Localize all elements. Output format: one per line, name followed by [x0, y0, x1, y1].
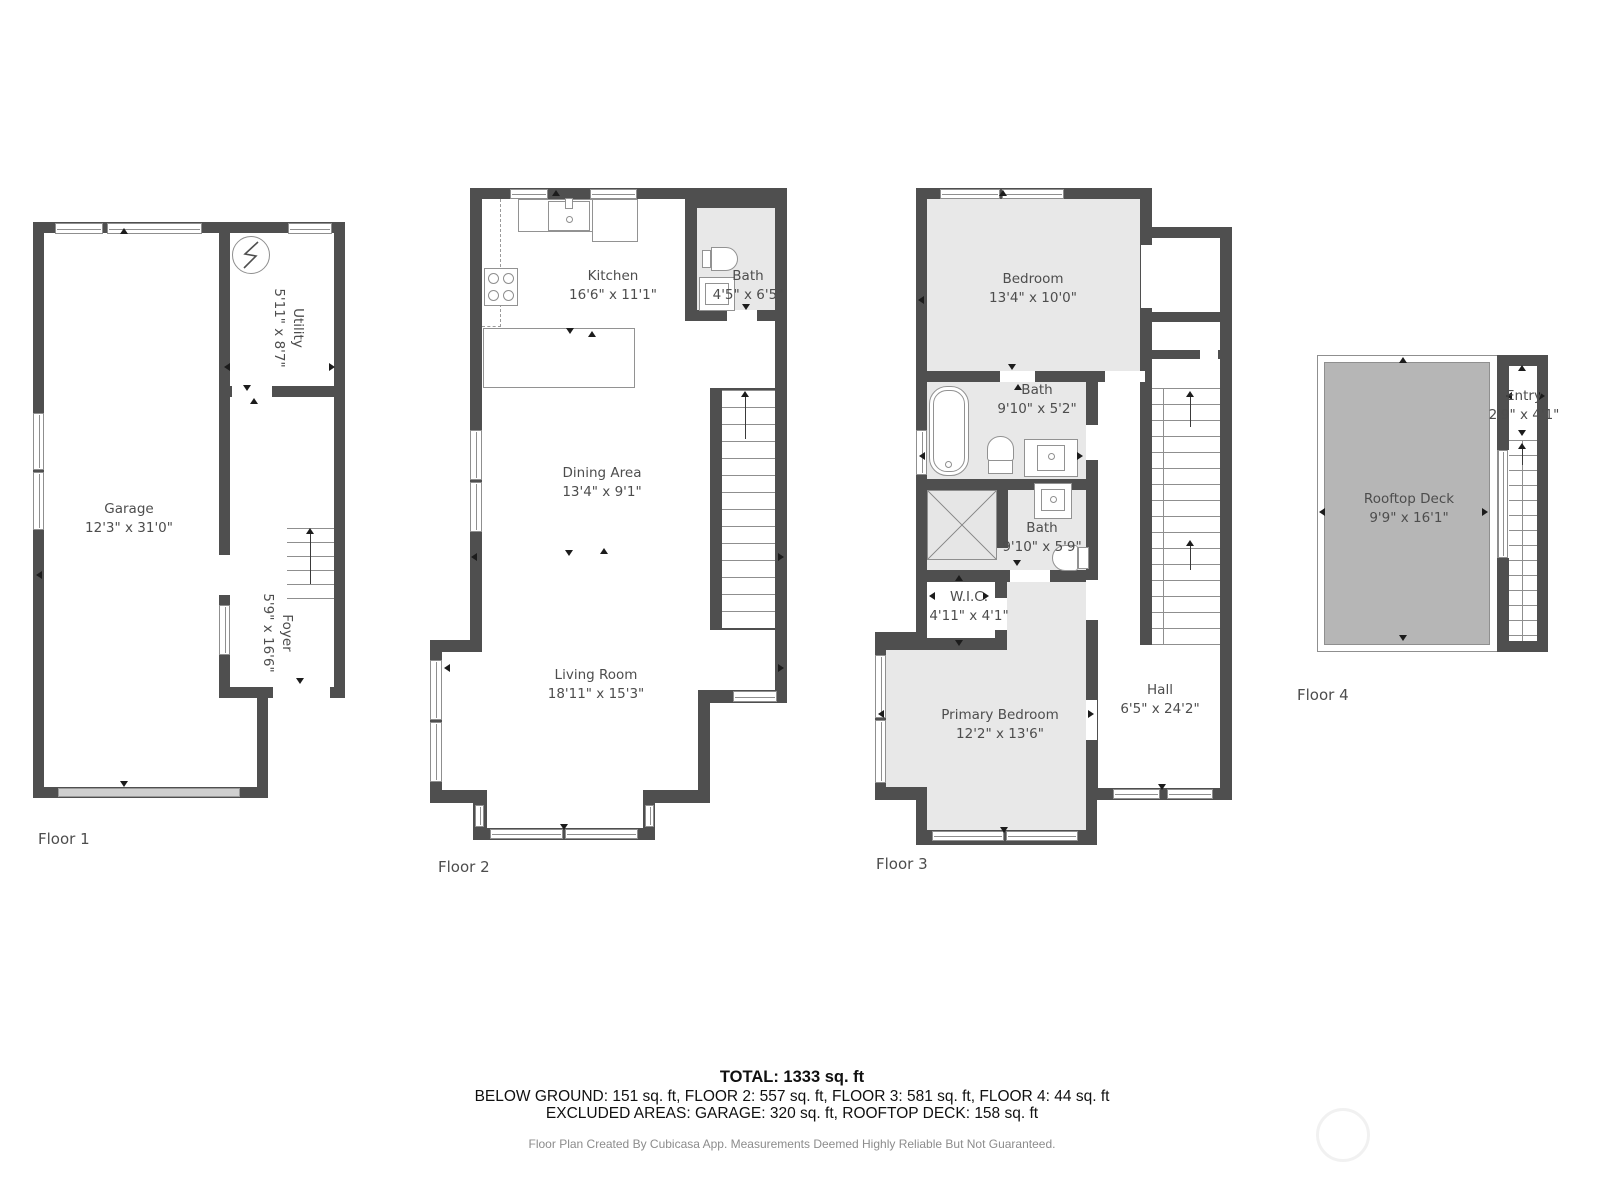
room-label-hall: Hall 6'5" x 24'2"	[1120, 681, 1199, 719]
door-swing-arrow	[918, 296, 924, 304]
floor-caption-2: Floor 2	[438, 858, 490, 876]
stairs-stringer	[1163, 388, 1164, 645]
room-dining	[482, 388, 710, 652]
garage-door	[58, 788, 240, 797]
room-hall	[1152, 359, 1220, 388]
outside	[655, 803, 710, 840]
room-dims: 4'5" x 6'5"	[713, 286, 784, 305]
room-dims: 9'10" x 5'2"	[997, 400, 1076, 419]
stove-burner	[488, 273, 499, 284]
room-dims: 16'6" x 11'1"	[569, 286, 657, 305]
room-name: Rooftop Deck	[1364, 490, 1454, 509]
door-swing-arrow	[120, 781, 128, 787]
refrigerator-outline	[482, 199, 501, 327]
room-dims: 2'9" x 4'1"	[1489, 406, 1560, 425]
toilet-tank	[988, 460, 1013, 474]
stairs	[1509, 440, 1537, 641]
room-name: Utility	[288, 288, 307, 367]
window	[470, 430, 482, 480]
stairs	[722, 390, 775, 628]
stairs-up-arrow	[1518, 443, 1526, 449]
room-hall	[1098, 382, 1140, 788]
stairs-direction-line	[310, 534, 311, 584]
room-label-bath: Bath 4'5" x 6'5"	[713, 267, 784, 305]
room-label-primary: Primary Bedroom 12'2" x 13'6"	[941, 706, 1059, 744]
door-swing-arrow	[742, 304, 750, 310]
stairs-direction-line	[1522, 449, 1523, 465]
door-swing-arrow	[243, 385, 251, 391]
sink-drain	[566, 216, 573, 223]
floor-caption-4: Floor 4	[1297, 686, 1349, 704]
door-swing-arrow	[471, 553, 477, 561]
room-name: Foyer	[277, 593, 296, 672]
door-opening	[1105, 371, 1145, 382]
door-swing-arrow	[778, 553, 784, 561]
room-name: Primary Bedroom	[941, 706, 1059, 725]
door-swing-arrow	[224, 363, 230, 371]
floorplan-canvas: Garage 12'3" x 31'0" Utility 5'11" x 8'7…	[0, 0, 1600, 1200]
room-name: Bath	[997, 381, 1076, 400]
room-label-entry: Entry 2'9" x 4'1"	[1489, 387, 1560, 425]
door-swing-arrow	[1399, 357, 1407, 363]
sink-drain	[1050, 496, 1057, 503]
window	[1006, 831, 1078, 841]
faucet	[565, 198, 573, 209]
window	[33, 413, 44, 470]
room-name: Living Room	[548, 666, 645, 685]
door-swing-arrow	[120, 228, 128, 234]
stairs-direction-line	[1190, 397, 1191, 427]
room-label-bedroom: Bedroom 13'4" x 10'0"	[989, 270, 1077, 308]
room-dims: 9'9" x 16'1"	[1364, 509, 1454, 528]
shower-fixture	[927, 490, 997, 560]
stairs-center-line	[1522, 440, 1523, 641]
window	[645, 805, 654, 827]
door-opening	[1086, 580, 1098, 620]
door-opening	[1086, 700, 1097, 740]
door-swing-arrow	[1319, 508, 1325, 516]
room-primary-bedroom	[1007, 582, 1086, 650]
room-closet	[1152, 322, 1220, 350]
room-label-bath-upper: Bath 9'10" x 5'2"	[997, 381, 1076, 419]
room-name: Garage	[85, 500, 173, 519]
door-swing-arrow	[1482, 508, 1488, 516]
room-dims: 12'3" x 31'0"	[85, 519, 173, 538]
window	[430, 722, 442, 782]
room-label-living: Living Room 18'11" x 15'3"	[548, 666, 645, 704]
window	[932, 831, 1004, 841]
door-swing-arrow	[565, 550, 573, 556]
door-swing-arrow	[878, 710, 884, 718]
room-dims: 18'11" x 15'3"	[548, 685, 645, 704]
room-label-dining: Dining Area 13'4" x 9'1"	[562, 464, 641, 502]
room-name: Dining Area	[562, 464, 641, 483]
window	[490, 829, 563, 839]
room-dims: 13'4" x 10'0"	[989, 289, 1077, 308]
window	[875, 655, 886, 718]
door-swing-arrow	[1013, 560, 1021, 566]
window	[1167, 789, 1213, 799]
room-dims: 6'5" x 24'2"	[1120, 700, 1199, 719]
window	[470, 482, 482, 532]
door-opening	[273, 687, 330, 698]
door-swing-arrow	[600, 548, 608, 554]
door-opening	[1200, 350, 1218, 359]
wall	[1497, 641, 1548, 652]
door-swing-arrow	[1000, 827, 1008, 833]
door-opening	[1141, 245, 1152, 308]
door-swing-arrow	[955, 575, 963, 581]
window	[219, 605, 230, 655]
room-living	[487, 787, 643, 828]
room-label-garage: Garage 12'3" x 31'0"	[85, 500, 173, 538]
window	[1498, 450, 1508, 558]
door-swing-arrow	[1158, 784, 1166, 790]
toilet-tank	[702, 250, 711, 268]
door-swing-arrow	[1088, 710, 1094, 718]
door-swing-arrow	[1518, 430, 1526, 436]
room-garage	[219, 698, 257, 787]
window	[590, 189, 637, 199]
door-opening	[727, 310, 757, 321]
stove-burner	[503, 290, 514, 301]
door-opening	[1086, 425, 1098, 460]
door-swing-arrow	[552, 190, 560, 196]
kitchen-counter	[592, 199, 638, 242]
window	[475, 805, 484, 827]
room-name: Bath	[713, 267, 784, 286]
window	[288, 223, 332, 234]
room-dims: 5'9" x 16'6"	[258, 593, 277, 672]
stairs-direction-line	[745, 397, 746, 439]
door-swing-arrow	[1008, 364, 1016, 370]
door-swing-arrow	[778, 664, 784, 672]
room-living	[698, 630, 775, 690]
door-swing-arrow	[296, 678, 304, 684]
room-dims: 9'10" x 5'9"	[1002, 538, 1081, 557]
toilet-bowl	[987, 436, 1014, 461]
door-swing-arrow	[999, 190, 1007, 196]
stove-burner	[488, 290, 499, 301]
stove-burner	[503, 273, 514, 284]
window	[55, 223, 103, 234]
room-label-kitchen: Kitchen 16'6" x 11'1"	[569, 267, 657, 305]
kitchen-island	[483, 328, 635, 388]
door-swing-arrow	[955, 640, 963, 646]
door-swing-arrow	[444, 664, 450, 672]
room-dims: 12'2" x 13'6"	[941, 725, 1059, 744]
room-name: Entry	[1489, 387, 1560, 406]
water-heater-icon	[231, 235, 271, 275]
door-swing-arrow	[1077, 452, 1083, 460]
door-opening	[232, 386, 272, 397]
window	[430, 660, 442, 720]
door-swing-arrow	[36, 571, 42, 579]
room-dims: 4'11" x 4'1"	[929, 607, 1008, 626]
floor-caption-3: Floor 3	[876, 855, 928, 873]
room-label-rooftop-deck: Rooftop Deck 9'9" x 16'1"	[1364, 490, 1454, 528]
room-name: Bedroom	[989, 270, 1077, 289]
room-label-bath-lower: Bath 9'10" x 5'9"	[1002, 519, 1081, 557]
door-opening	[1010, 570, 1050, 582]
room-name: Hall	[1120, 681, 1199, 700]
floor-caption-1: Floor 1	[38, 830, 90, 848]
window	[733, 691, 777, 702]
window	[1113, 789, 1160, 799]
window	[510, 189, 548, 199]
stairs-up-arrow	[306, 528, 314, 534]
outside	[430, 803, 473, 840]
wall	[1497, 558, 1509, 652]
room-label-utility: Utility 5'11" x 8'7"	[269, 288, 307, 367]
total-area-line: TOTAL: 1333 sq. ft	[0, 1068, 1592, 1087]
door-swing-arrow	[1399, 635, 1407, 641]
stairs-up-arrow	[1186, 540, 1194, 546]
window	[875, 720, 886, 783]
window	[33, 472, 44, 530]
room-label-wic: W.I.C. 4'11" x 4'1"	[929, 588, 1008, 626]
window	[940, 189, 1000, 199]
room-name: W.I.C.	[929, 588, 1008, 607]
door-swing-arrow	[588, 331, 596, 337]
sink-drain	[1048, 453, 1055, 460]
door-swing-arrow	[566, 328, 574, 334]
door-swing-arrow	[560, 824, 568, 830]
stairs-direction-line	[1190, 546, 1191, 570]
bathtub-basin	[933, 390, 965, 472]
floor-areas-line: BELOW GROUND: 151 sq. ft, FLOOR 2: 557 s…	[0, 1088, 1592, 1106]
stairs-up-arrow	[1186, 391, 1194, 397]
room-dims: 13'4" x 9'1"	[562, 483, 641, 502]
door-swing-arrow	[919, 452, 925, 460]
watermark-circle	[1316, 1108, 1370, 1162]
stairs-up-arrow	[741, 391, 749, 397]
room-primary-bedroom	[927, 787, 1086, 830]
room-name: Bath	[1002, 519, 1081, 538]
door-swing-arrow	[329, 363, 335, 371]
room-closet	[1152, 238, 1220, 312]
door-swing-arrow	[1518, 365, 1526, 371]
door-swing-arrow	[250, 398, 258, 404]
window	[565, 829, 638, 839]
window	[1002, 189, 1064, 199]
outside	[875, 800, 916, 845]
room-dims: 5'11" x 8'7"	[269, 288, 288, 367]
door-opening	[219, 555, 230, 595]
faucet	[945, 461, 952, 468]
room-label-foyer: Foyer 5'9" x 16'6"	[258, 593, 296, 672]
room-name: Kitchen	[569, 267, 657, 286]
